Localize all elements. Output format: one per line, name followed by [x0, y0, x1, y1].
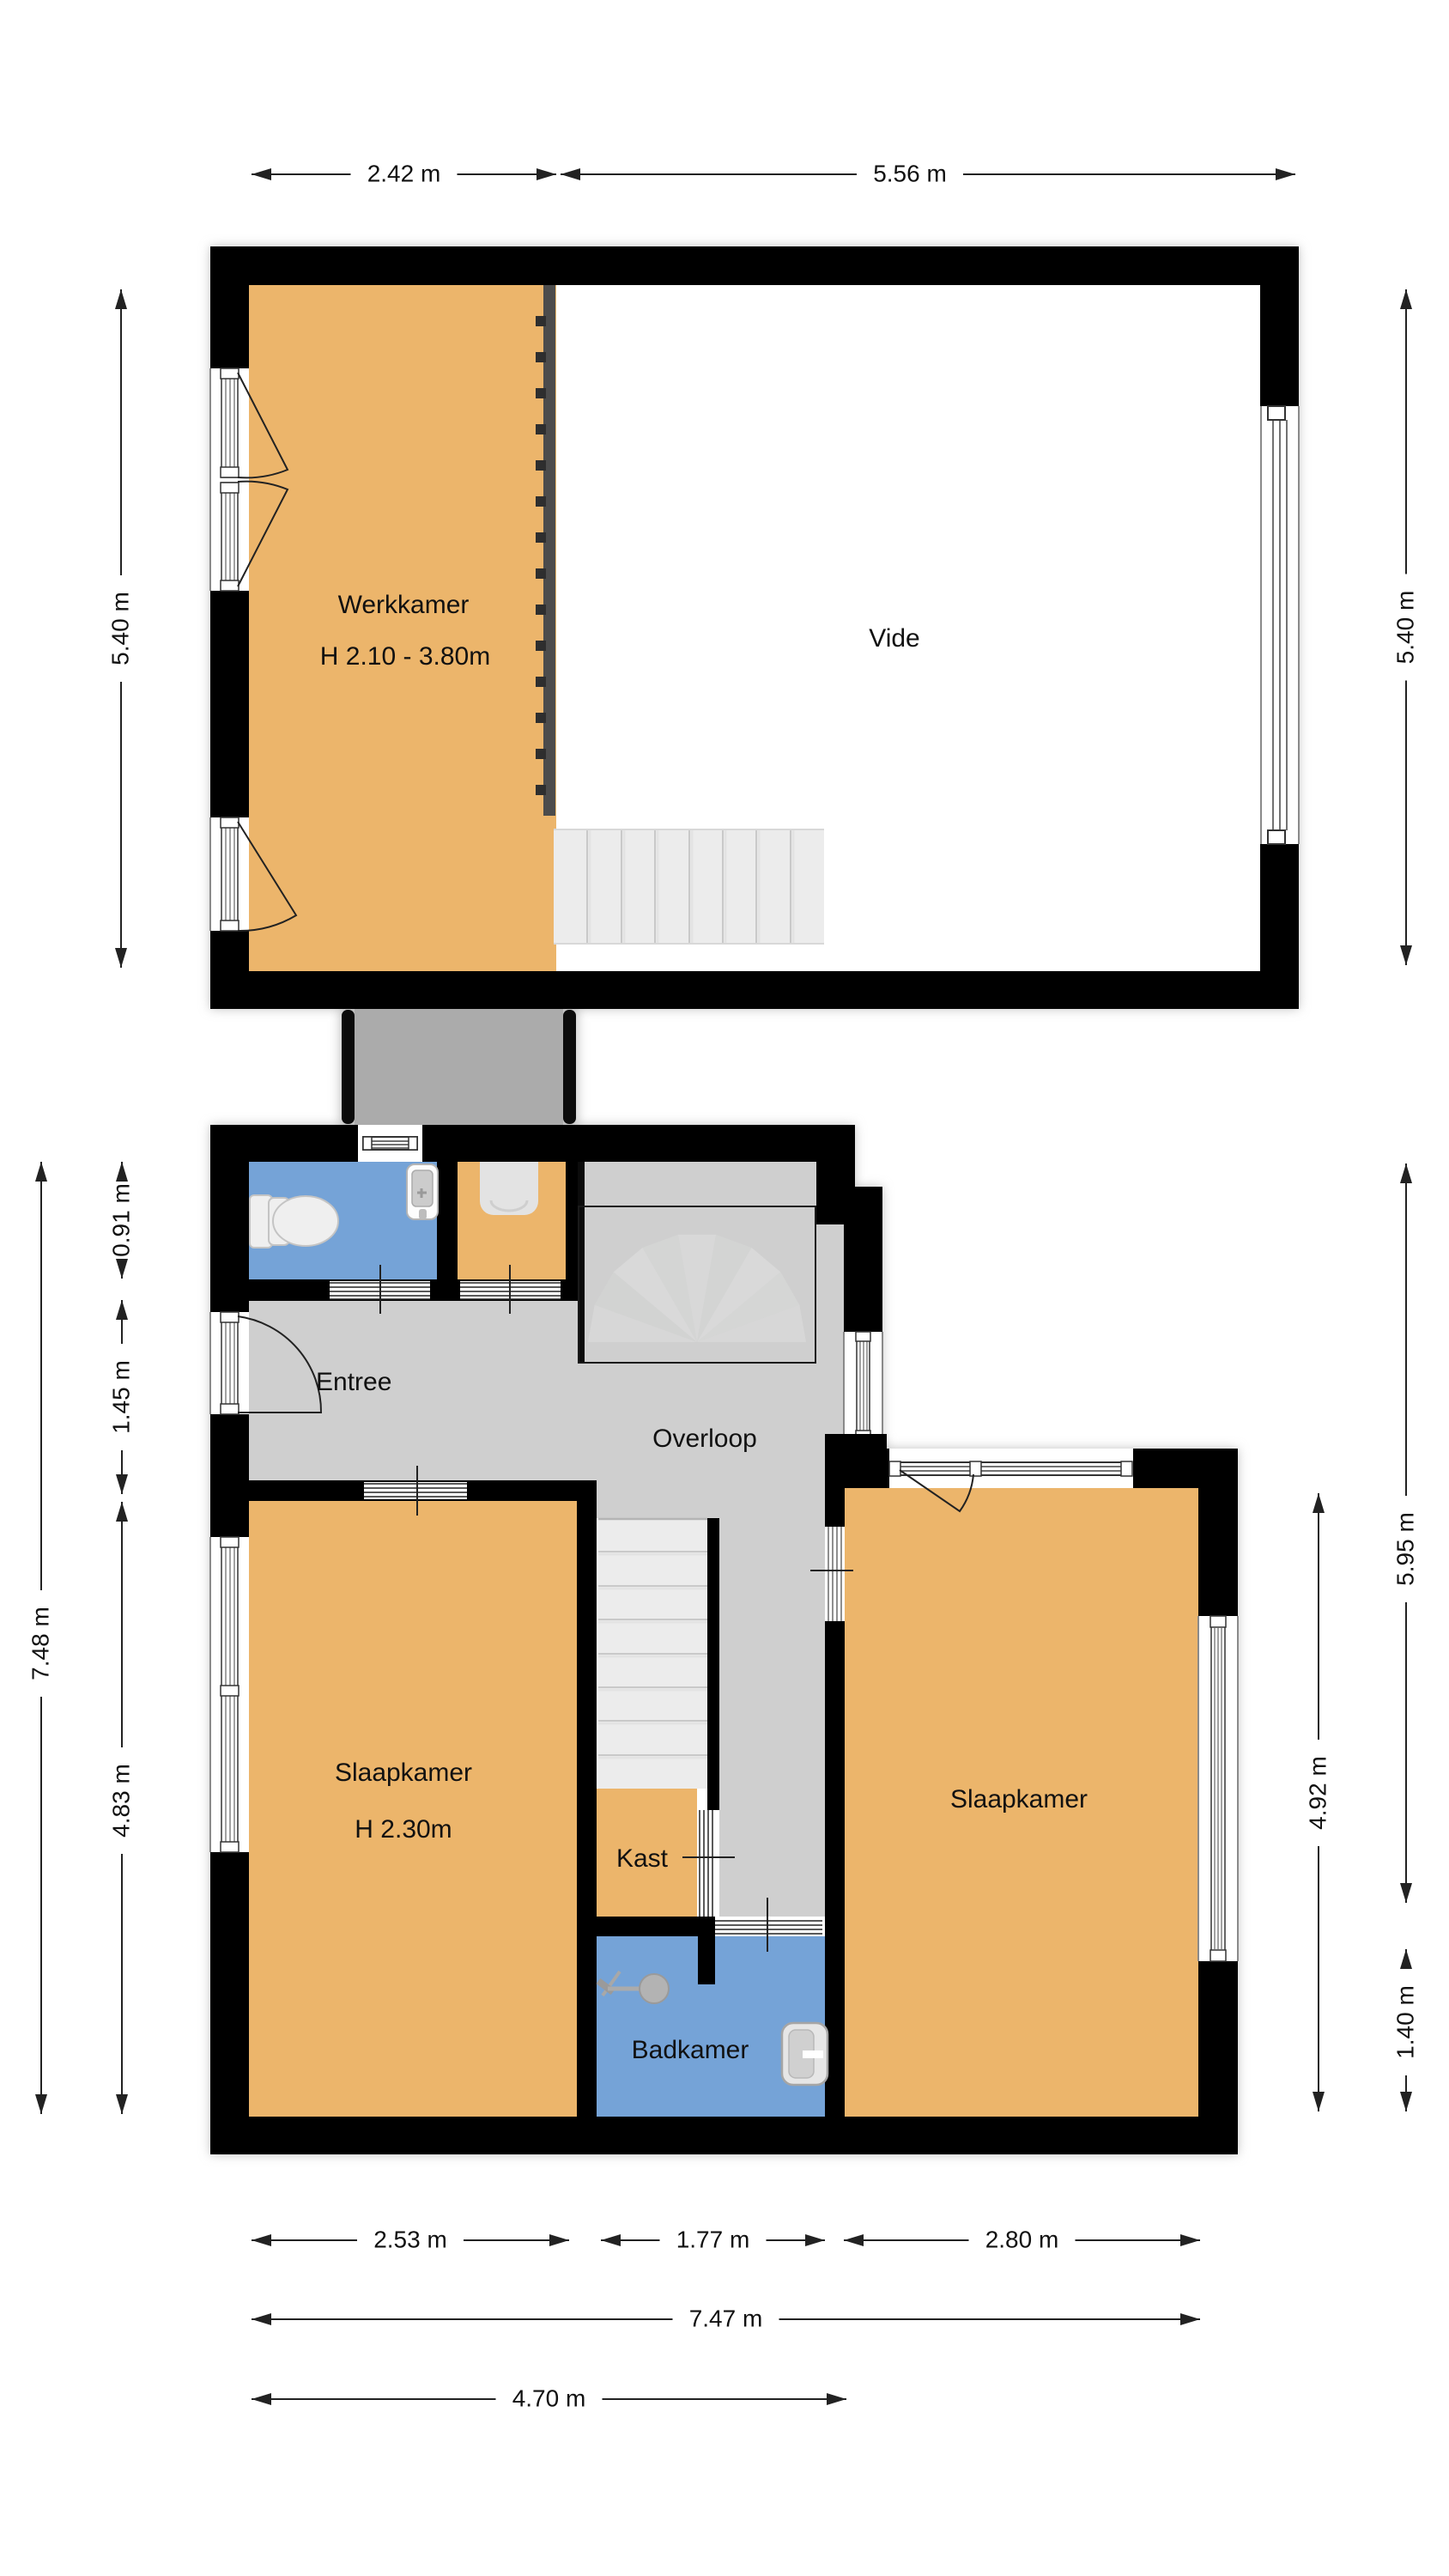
- svg-text:0.91 m: 0.91 m: [107, 1183, 134, 1257]
- svg-text:7.47 m: 7.47 m: [689, 2305, 763, 2331]
- svg-text:Kast: Kast: [616, 1844, 669, 1873]
- svg-text:H 2.30m: H 2.30m: [355, 1815, 452, 1844]
- svg-text:2.42 m: 2.42 m: [367, 160, 441, 186]
- svg-text:5.40 m: 5.40 m: [1391, 591, 1418, 665]
- svg-text:1.77 m: 1.77 m: [676, 2226, 750, 2252]
- svg-text:5.40 m: 5.40 m: [106, 592, 133, 665]
- svg-text:Slaapkamer: Slaapkamer: [950, 1785, 1088, 1814]
- svg-text:2.80 m: 2.80 m: [985, 2226, 1059, 2252]
- svg-text:4.70 m: 4.70 m: [512, 2385, 586, 2411]
- svg-text:Slaapkamer: Slaapkamer: [335, 1759, 472, 1787]
- svg-text:7.48 m: 7.48 m: [27, 1607, 53, 1680]
- svg-text:1.40 m: 1.40 m: [1391, 1985, 1418, 2059]
- svg-text:4.92 m: 4.92 m: [1304, 1756, 1331, 1830]
- svg-text:Badkamer: Badkamer: [632, 2036, 749, 2064]
- svg-text:5.56 m: 5.56 m: [873, 160, 947, 186]
- svg-text:Entree: Entree: [316, 1368, 391, 1396]
- svg-text:1.45 m: 1.45 m: [107, 1360, 134, 1434]
- svg-text:Vide: Vide: [869, 624, 920, 653]
- svg-text:5.95 m: 5.95 m: [1391, 1512, 1418, 1586]
- svg-text:Werkkamer: Werkkamer: [338, 591, 470, 619]
- svg-text:2.53 m: 2.53 m: [373, 2226, 447, 2252]
- svg-text:H 2.10 - 3.80m: H 2.10 - 3.80m: [320, 642, 490, 671]
- svg-text:Overloop: Overloop: [652, 1425, 757, 1453]
- svg-text:4.83 m: 4.83 m: [107, 1764, 134, 1838]
